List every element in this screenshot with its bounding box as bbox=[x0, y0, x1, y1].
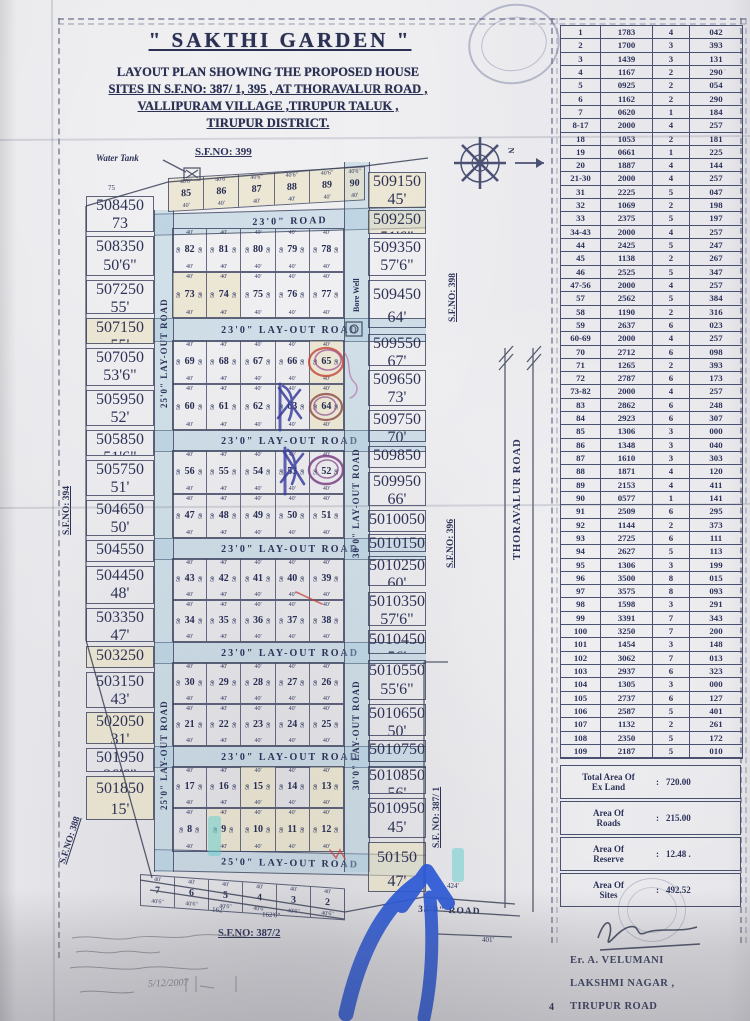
plot-cell: 40'6"8840' bbox=[275, 171, 310, 205]
table-cell: 33 bbox=[561, 212, 601, 224]
left-layout-road-label-2: 25'0" LAY-OUT ROAD bbox=[159, 700, 169, 810]
table-row: 8921534411 bbox=[561, 479, 742, 492]
plot-grid-row: 40'50215040'40'50225040'40'50235040'40'5… bbox=[172, 704, 344, 746]
total-colon: : bbox=[656, 813, 666, 823]
table-cell: 8 bbox=[653, 572, 690, 584]
table-row: 314393131 bbox=[561, 53, 742, 66]
table-cell: 1265 bbox=[601, 359, 653, 371]
table-cell: 247 bbox=[690, 239, 742, 251]
table-cell: 5 bbox=[653, 705, 690, 717]
table-cell: 384 bbox=[690, 292, 742, 304]
table-cell: 108 bbox=[561, 732, 601, 744]
plot-cell: 40'50405040' bbox=[276, 559, 310, 599]
page-title: " SAKTHI GARDEN " bbox=[120, 28, 440, 53]
plot-cell: 40'50735040' bbox=[173, 273, 207, 317]
sf-387-2-label: S.F.NO: 387/2 bbox=[218, 928, 280, 939]
table-cell: 57 bbox=[561, 292, 601, 304]
plot-cell: 40'50605040' bbox=[173, 385, 207, 429]
table-cell: 2937 bbox=[601, 665, 653, 677]
plot-cell: 40'50525040' bbox=[310, 451, 343, 493]
table-row: 10527376127 bbox=[561, 692, 742, 705]
plot-cell: 40'50215040' bbox=[173, 705, 207, 745]
table-cell: 2562 bbox=[601, 292, 653, 304]
plot-grid-row: 40'50435040'40'50425040'40'50415040'40'5… bbox=[172, 558, 344, 600]
table-cell: 040 bbox=[690, 439, 742, 451]
sheet-corner-number: 4 bbox=[549, 1002, 554, 1013]
table-cell: 1306 bbox=[601, 425, 653, 437]
table-cell: 1306 bbox=[601, 559, 653, 571]
plot-cell: 501015052'6" bbox=[368, 534, 426, 552]
table-cell: 109 bbox=[561, 745, 601, 757]
sf-398-label: S.F.NO: 398 bbox=[448, 273, 458, 322]
plot-cell: 40'50345040' bbox=[173, 601, 207, 641]
plot-cell: 50975070' bbox=[368, 410, 426, 442]
table-cell: 5 bbox=[653, 212, 690, 224]
plot-cell: 40'50365040' bbox=[241, 601, 275, 641]
table-cell: 85 bbox=[561, 425, 601, 437]
table-cell: 3 bbox=[653, 452, 690, 464]
table-row: 9635008015 bbox=[561, 572, 742, 585]
teal-marker-2 bbox=[452, 848, 464, 882]
table-cell: 104 bbox=[561, 678, 601, 690]
table-cell: 184 bbox=[690, 106, 742, 118]
plot-cell: 50205031' bbox=[86, 712, 154, 744]
table-cell: 2350 bbox=[601, 732, 653, 744]
table-cell: 4 bbox=[653, 385, 690, 397]
table-cell: 013 bbox=[690, 652, 742, 664]
table-cell: 20 bbox=[561, 159, 601, 171]
plot-cell: 40'50515040' bbox=[310, 495, 343, 537]
table-row: 8-1720004257 bbox=[561, 119, 742, 132]
table-cell: 2627 bbox=[601, 545, 653, 557]
table-cell: 3575 bbox=[601, 585, 653, 597]
table-cell: 0661 bbox=[601, 146, 653, 158]
table-cell: 3 bbox=[653, 559, 690, 571]
table-cell: 2225 bbox=[601, 186, 653, 198]
plot-cell: 50575051' bbox=[86, 460, 154, 496]
sf-387-1-label: S.F. NO: 387/ 1 bbox=[432, 787, 442, 848]
total-box: Area OfSites:492.52 bbox=[560, 873, 741, 907]
table-cell: 100 bbox=[561, 625, 601, 637]
table-row: 9815983291 bbox=[561, 598, 742, 611]
table-cell: 70 bbox=[561, 346, 601, 358]
table-cell: 2 bbox=[653, 133, 690, 145]
sf-394-label: S.F.NO: 394 bbox=[62, 486, 72, 535]
table-cell: 2000 bbox=[601, 172, 653, 184]
bottom-plot-row: 40'740'6"40'640'6"40'540'6"40'440'6"40'3… bbox=[140, 874, 345, 920]
plot-grid-row: 40'50695040'40'50685040'40'50675040'40'5… bbox=[172, 340, 344, 384]
total-box: Total Area OfEx Land:720.00 bbox=[560, 765, 741, 799]
plot-cell: 40'50145040' bbox=[276, 767, 310, 807]
table-cell: 3 bbox=[561, 53, 601, 65]
plot-cell: 50945064' bbox=[368, 280, 426, 328]
plot-cell: 501075051'6" bbox=[368, 740, 426, 762]
table-row: 9211442373 bbox=[561, 519, 742, 532]
table-cell: 3391 bbox=[601, 612, 653, 624]
table-cell: 3 bbox=[653, 425, 690, 437]
table-cell: 5 bbox=[653, 732, 690, 744]
layout-road-4-label: 23'0" LAY-OUT ROAD bbox=[221, 648, 359, 659]
plot-cell: 40'50555040' bbox=[207, 451, 241, 493]
table-cell: 393 bbox=[690, 39, 742, 51]
table-cell: 3 bbox=[653, 439, 690, 451]
plot-cell: 40'50785040' bbox=[310, 229, 343, 271]
sheet-border-left bbox=[58, 18, 60, 958]
table-row: 1906611225 bbox=[561, 146, 742, 159]
plot-grid-row: 40'50825040'40'50815040'40'50805040'40'5… bbox=[172, 228, 344, 272]
plot-cell: 50955067' bbox=[368, 334, 426, 366]
plot-cell: 40'50505040' bbox=[276, 495, 310, 537]
table-row: 9426275113 bbox=[561, 545, 742, 558]
plot-cell: 40'50825040' bbox=[173, 229, 207, 271]
total-colon: : bbox=[656, 777, 666, 787]
plot-cell: 40'340'6" bbox=[277, 885, 311, 917]
plot-cell: 40'6"8540' bbox=[169, 177, 204, 211]
table-cell: 5 bbox=[561, 79, 601, 91]
plot-cell: 40'50815040' bbox=[207, 229, 241, 271]
table-row: 34-4320004257 bbox=[561, 226, 742, 239]
table-cell: 113 bbox=[690, 545, 742, 557]
table-cell: 94 bbox=[561, 545, 601, 557]
signatory-address1: LAKSHMI NAGAR , bbox=[570, 978, 740, 989]
plot-cell: 40'50495040' bbox=[241, 495, 275, 537]
table-row: 9933917343 bbox=[561, 612, 742, 625]
table-cell: 2712 bbox=[601, 346, 653, 358]
table-cell: 4 bbox=[653, 26, 690, 38]
table-row: 10921875010 bbox=[561, 745, 742, 758]
plot-cell: 40'50795040' bbox=[276, 229, 310, 271]
plot-cell: 50935057'6" bbox=[368, 238, 426, 276]
plot-cell: 40'50475040' bbox=[173, 495, 207, 537]
table-cell: 107 bbox=[561, 718, 601, 730]
signatory-name: Er. A. VELUMANI bbox=[570, 955, 740, 966]
plot-cell: 40'50395040' bbox=[310, 559, 343, 599]
table-row: 8818714120 bbox=[561, 465, 742, 478]
table-row: 1810532181 bbox=[561, 133, 742, 146]
table-cell: 295 bbox=[690, 505, 742, 517]
compass-rose bbox=[454, 137, 544, 189]
table-cell: 6 bbox=[653, 412, 690, 424]
table-cell: 6 bbox=[653, 399, 690, 411]
plot-cell: 40'50755040' bbox=[241, 273, 275, 317]
table-row: 47-5620004257 bbox=[561, 279, 742, 292]
table-row: 2018874144 bbox=[561, 159, 742, 172]
table-cell: 1700 bbox=[601, 39, 653, 51]
table-cell: 1 bbox=[653, 106, 690, 118]
sheet-border-mid bbox=[551, 18, 553, 943]
plot-cell: 50455049' bbox=[86, 540, 154, 562]
table-row: 8613483040 bbox=[561, 439, 742, 452]
plot-cell: 40'50635040' bbox=[276, 385, 310, 429]
table-cell: 1 bbox=[653, 146, 690, 158]
layout-road-1-label: 23'0" LAY-OUT ROAD bbox=[221, 325, 359, 336]
table-row: 9005771141 bbox=[561, 492, 742, 505]
table-cell: 34-43 bbox=[561, 226, 601, 238]
table-row: 10329376323 bbox=[561, 665, 742, 678]
table-cell: 1144 bbox=[601, 519, 653, 531]
table-row: 5811902316 bbox=[561, 306, 742, 319]
teal-marker-1 bbox=[208, 816, 221, 856]
plot-grid-row: 40'50345040'40'50355040'40'50365040'40'5… bbox=[172, 600, 344, 642]
plot-cell: 50325046' bbox=[86, 646, 154, 668]
table-row: 3323755197 bbox=[561, 212, 742, 225]
table-cell: 2923 bbox=[601, 412, 653, 424]
plot-cell: 40'50415040' bbox=[241, 559, 275, 599]
table-cell: 44 bbox=[561, 239, 601, 251]
plot-cell: 40'640'6" bbox=[175, 877, 209, 909]
total-label: Area OfRoads bbox=[561, 808, 656, 829]
table-cell: 2637 bbox=[601, 319, 653, 331]
table-cell: 000 bbox=[690, 425, 742, 437]
plot-cell: 5015047' bbox=[368, 842, 426, 892]
table-cell: 0577 bbox=[601, 492, 653, 504]
plot-cell: 501085056' bbox=[368, 766, 426, 794]
table-cell: 4 bbox=[653, 479, 690, 491]
plot-cell: 40'50305040' bbox=[173, 663, 207, 703]
table-row: 3122255047 bbox=[561, 186, 742, 199]
plot-cell: 40'50485040' bbox=[207, 495, 241, 537]
table-cell: 99 bbox=[561, 612, 601, 624]
plot-cell: 40'540'6" bbox=[209, 880, 243, 912]
table-cell: 71 bbox=[561, 359, 601, 371]
table-cell: 3500 bbox=[601, 572, 653, 584]
table-row: 9327256111 bbox=[561, 532, 742, 545]
title-sub1: LAYOUT PLAN SHOWING THE PROPOSED HOUSE bbox=[62, 64, 474, 81]
plot-cell: 40'50165040' bbox=[207, 767, 241, 807]
plot-grid-row: 40'50565040'40'50555040'40'50545040'40'5… bbox=[172, 450, 344, 494]
left-layout-road-label-1: 25'0" LAY-OUT ROAD bbox=[159, 298, 169, 408]
table-row: 10230627013 bbox=[561, 652, 742, 665]
north-letter: N bbox=[506, 148, 515, 154]
thoravalur-road-label: THORAVALUR ROAD bbox=[512, 438, 523, 560]
layout-road-bottom-label: 25'0" LAY-OUT ROAD bbox=[221, 856, 359, 870]
table-row: 117834042 bbox=[561, 26, 742, 39]
top-plot-strip: 40'6"8540'40'6"8640'40'6"8740'40'6"8840'… bbox=[168, 166, 365, 212]
plot-cell: 40'50385040' bbox=[310, 601, 343, 641]
blue-arrow-annotation bbox=[346, 871, 448, 1018]
table-cell: 2737 bbox=[601, 692, 653, 704]
plot-cell: 40'50545040' bbox=[241, 451, 275, 493]
table-cell: 2 bbox=[653, 199, 690, 211]
table-cell: 93 bbox=[561, 532, 601, 544]
table-cell: 141 bbox=[690, 492, 742, 504]
layout-road-5-label: 23'0" LAY-OUT ROAD bbox=[221, 752, 359, 763]
table-row: 10032507200 bbox=[561, 625, 742, 638]
plot-cell: 40'50105040' bbox=[241, 809, 275, 851]
table-row: 9513063199 bbox=[561, 559, 742, 572]
plot-grid-row: 40'50605040'40'50615040'40'50625040'40'5… bbox=[172, 384, 344, 430]
sf-388-label: S.F.NO: 388 bbox=[58, 815, 83, 865]
table-row: 10114543148 bbox=[561, 638, 742, 651]
plot-cell: 50445048' bbox=[86, 566, 154, 604]
table-cell: 2000 bbox=[601, 332, 653, 344]
plot-grid-row: 40'50475040'40'50485040'40'50495040'40'5… bbox=[172, 494, 344, 538]
table-row: 509252054 bbox=[561, 79, 742, 92]
table-cell: 127 bbox=[690, 692, 742, 704]
table-row: 611622290 bbox=[561, 93, 742, 106]
table-cell: 3062 bbox=[601, 652, 653, 664]
table-cell: 2153 bbox=[601, 479, 653, 491]
table-cell: 6 bbox=[653, 692, 690, 704]
table-cell: 2000 bbox=[601, 385, 653, 397]
water-tank-label: Water Tank bbox=[96, 153, 139, 163]
dim-75: 75 bbox=[108, 184, 115, 192]
table-cell: 4 bbox=[561, 66, 601, 78]
table-cell: 18 bbox=[561, 133, 601, 145]
scanned-layout-plan-sheet: " SAKTHI GARDEN " LAYOUT PLAN SHOWING TH… bbox=[0, 0, 750, 1021]
table-row: 73-8220004257 bbox=[561, 385, 742, 398]
table-cell: 248 bbox=[690, 399, 742, 411]
table-cell: 2425 bbox=[601, 239, 653, 251]
table-cell: 4 bbox=[653, 332, 690, 344]
plot-cell: 50915045' bbox=[368, 172, 426, 208]
plot-cell: 40'50655040' bbox=[310, 341, 343, 383]
table-cell: 96 bbox=[561, 572, 601, 584]
table-cell: 73-82 bbox=[561, 385, 601, 397]
plot-grid-row: 40'50175040'40'50165040'40'50155040'40'5… bbox=[172, 766, 344, 808]
table-cell: 2725 bbox=[601, 532, 653, 544]
table-cell: 323 bbox=[690, 665, 742, 677]
table-cell: 261 bbox=[690, 718, 742, 730]
table-cell: 1162 bbox=[601, 93, 653, 105]
plot-cell: 40'440'6" bbox=[243, 882, 277, 914]
sheet-border-right-inner bbox=[745, 18, 747, 943]
table-cell: 1783 bbox=[601, 26, 653, 38]
handwritten-date: 5/12/2007 bbox=[148, 977, 189, 989]
table-cell: 7 bbox=[653, 612, 690, 624]
table-cell: 103 bbox=[561, 665, 601, 677]
table-cell: 200 bbox=[690, 625, 742, 637]
table-cell: 83 bbox=[561, 399, 601, 411]
table-cell: 010 bbox=[690, 745, 742, 757]
table-cell: 90 bbox=[561, 492, 601, 504]
table-cell: 316 bbox=[690, 306, 742, 318]
plot-cell: 40'50135040' bbox=[310, 767, 343, 807]
plot-grid-row: 40'50735040'40'50745040'40'50755040'40'5… bbox=[172, 272, 344, 318]
table-cell: 198 bbox=[690, 199, 742, 211]
plot-cell: 40'50665040' bbox=[276, 341, 310, 383]
plot-cell: 50585051'6" bbox=[86, 430, 154, 456]
plot-cell: 40'50745040' bbox=[207, 273, 241, 317]
layout-road-2-label: 23'0" LAY-OUT ROAD bbox=[221, 436, 359, 447]
table-cell: 1 bbox=[653, 492, 690, 504]
table-cell: 1 bbox=[561, 26, 601, 38]
table-cell: 19 bbox=[561, 146, 601, 158]
plot-cell: 40'50255040' bbox=[310, 705, 343, 745]
table-cell: 015 bbox=[690, 572, 742, 584]
plot-cell: 40'50535040' bbox=[276, 451, 310, 493]
plot-cell: 501095045' bbox=[368, 798, 426, 838]
table-cell: 291 bbox=[690, 598, 742, 610]
plot-cell: 40'5085040' bbox=[173, 809, 207, 851]
plot-cell: 40'50175040' bbox=[173, 767, 207, 807]
plot-area-table: 1178340422170033933143931314116722905092… bbox=[560, 25, 743, 759]
table-row: 9125096295 bbox=[561, 505, 742, 518]
table-cell: 86 bbox=[561, 439, 601, 451]
table-cell: 401 bbox=[690, 705, 742, 717]
table-cell: 290 bbox=[690, 93, 742, 105]
table-cell: 267 bbox=[690, 252, 742, 264]
table-cell: 303 bbox=[690, 452, 742, 464]
total-label: Area OfReserve bbox=[561, 844, 656, 865]
table-cell: 4 bbox=[653, 172, 690, 184]
table-cell: 101 bbox=[561, 638, 601, 650]
table-cell: 3 bbox=[653, 638, 690, 650]
table-cell: 87 bbox=[561, 452, 601, 464]
table-cell: 6 bbox=[653, 346, 690, 358]
table-cell: 2000 bbox=[601, 119, 653, 131]
table-row: 217003393 bbox=[561, 39, 742, 52]
table-row: 4625255347 bbox=[561, 266, 742, 279]
table-cell: 111 bbox=[690, 532, 742, 544]
plot-cell: 40'50155040' bbox=[241, 767, 275, 807]
table-cell: 131 bbox=[690, 53, 742, 65]
table-cell: 0620 bbox=[601, 106, 653, 118]
sf-399-label: S.F.NO: 399 bbox=[195, 146, 252, 158]
table-cell: 1132 bbox=[601, 718, 653, 730]
table-cell: 106 bbox=[561, 705, 601, 717]
table-cell: 2 bbox=[653, 93, 690, 105]
total-box: Area OfReserve:12.48 . bbox=[560, 837, 741, 871]
table-cell: 347 bbox=[690, 266, 742, 278]
plot-cell: 40'50675040' bbox=[241, 341, 275, 383]
table-cell: 72 bbox=[561, 372, 601, 384]
table-cell: 093 bbox=[690, 585, 742, 597]
table-cell: 6 bbox=[653, 665, 690, 677]
plot-cell: 40'50565040' bbox=[173, 451, 207, 493]
plot-cell: 40'50615040' bbox=[207, 385, 241, 429]
table-cell: 148 bbox=[690, 638, 742, 650]
table-cell: 257 bbox=[690, 119, 742, 131]
plot-cell: 50195026'6" bbox=[86, 748, 154, 772]
table-row: 706201184 bbox=[561, 106, 742, 119]
table-row: 9735758093 bbox=[561, 585, 742, 598]
plot-cell: 50715055' bbox=[86, 318, 154, 344]
sheet-border-mid-inner bbox=[556, 18, 558, 943]
plot-cell: 40'50225040' bbox=[207, 705, 241, 745]
table-row: 8429236307 bbox=[561, 412, 742, 425]
table-cell: 46 bbox=[561, 266, 601, 278]
plot-grid-row: 40'50305040'40'50295040'40'50285040'40'5… bbox=[172, 662, 344, 704]
table-cell: 89 bbox=[561, 479, 601, 491]
table-cell: 98 bbox=[561, 598, 601, 610]
plot-cell: 50725055' bbox=[86, 280, 154, 314]
plot-cell: 40'50115040' bbox=[276, 809, 310, 851]
table-cell: 5 bbox=[653, 239, 690, 251]
table-cell: 5 bbox=[653, 186, 690, 198]
table-cell: 8-17 bbox=[561, 119, 601, 131]
table-cell: 4 bbox=[653, 159, 690, 171]
title-sub3: VALLIPURAM VILLAGE ,TIRUPUR TALUK , bbox=[62, 98, 474, 115]
plot-cell: 501065050' bbox=[368, 704, 426, 736]
total-value: 215.00 bbox=[666, 813, 726, 823]
table-cell: 3 bbox=[653, 53, 690, 65]
table-cell: 6 bbox=[653, 505, 690, 517]
title-sub4: TIRUPUR DISTRICT. bbox=[62, 115, 474, 132]
table-cell: 4 bbox=[653, 279, 690, 291]
table-cell: 60-69 bbox=[561, 332, 601, 344]
table-cell: 2862 bbox=[601, 399, 653, 411]
table-cell: 023 bbox=[690, 319, 742, 331]
plot-cell: 50985069' bbox=[368, 446, 426, 468]
table-cell: 393 bbox=[690, 359, 742, 371]
table-row: 8328626248 bbox=[561, 399, 742, 412]
table-cell: 0925 bbox=[601, 79, 653, 91]
table-cell: 97 bbox=[561, 585, 601, 597]
table-cell: 042 bbox=[690, 26, 742, 38]
table-cell: 2 bbox=[653, 359, 690, 371]
table-row: 3210692198 bbox=[561, 199, 742, 212]
